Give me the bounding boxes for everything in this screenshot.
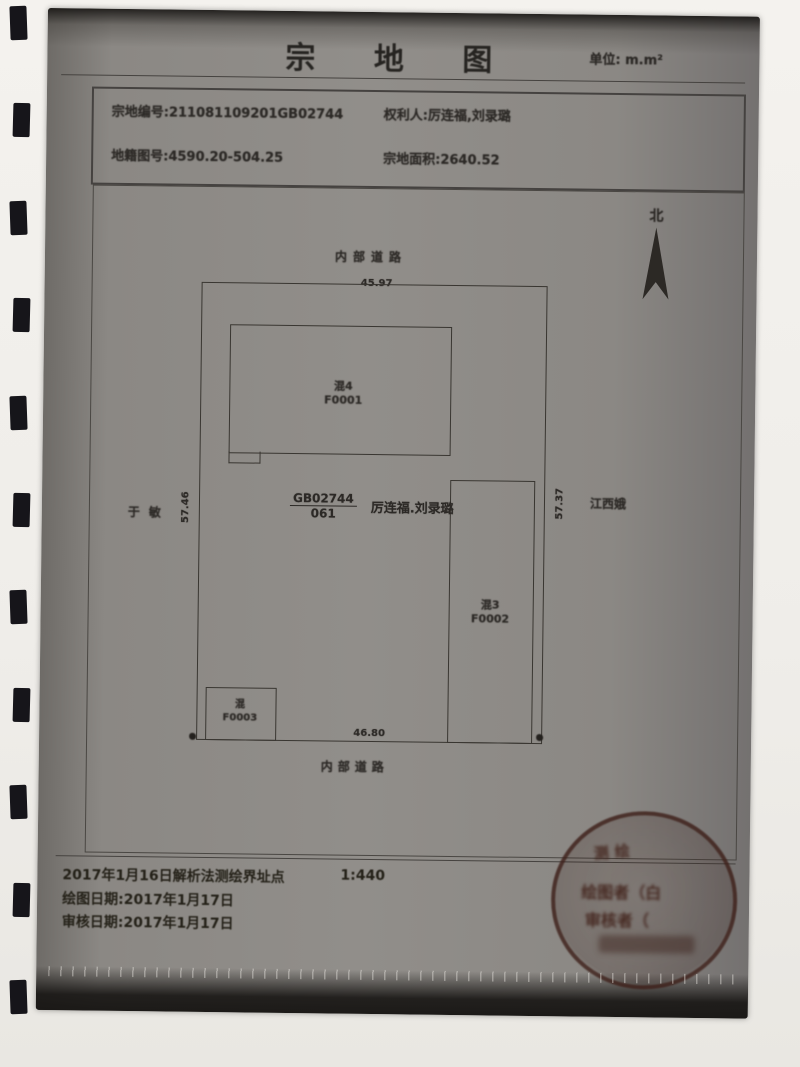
- neighbor-left: 于敏: [128, 503, 170, 521]
- stamp-smudge: [598, 935, 694, 954]
- binding-mark: [9, 785, 27, 820]
- binding-mark: [13, 298, 31, 332]
- binding-mark: [13, 103, 31, 137]
- review-date: 审核日期:2017年1月17日: [62, 911, 234, 933]
- binding-mark: [9, 6, 27, 41]
- binding-mark: [9, 200, 27, 235]
- dimension-bottom: 46.80: [339, 728, 399, 740]
- building-code: F0001: [293, 393, 393, 408]
- binding-mark: [13, 493, 31, 527]
- binding-mark: [13, 688, 31, 722]
- cadastral-sheet-number: 地籍图号:4590.20-504.25: [111, 145, 283, 166]
- parcel-designation: GB02744 061 厉连福.刘录璐: [290, 491, 454, 522]
- parcel-info-box: 宗地编号:211081109201GB02744 权利人:厉连福,刘录璐 地籍图…: [91, 87, 746, 193]
- binding-mark: [9, 590, 27, 625]
- drawing-date: 绘图日期:2017年1月17日: [62, 888, 234, 910]
- stamp-arc-text: 测绘: [593, 839, 637, 864]
- unit-label: 单位: m.m²: [589, 49, 663, 69]
- building-code: F0003: [205, 711, 274, 725]
- building-type: 混4: [293, 379, 393, 394]
- dimension-right: 57.37: [554, 488, 565, 520]
- north-label: 北: [649, 205, 663, 225]
- binding-mark: [9, 395, 27, 430]
- boundary-point-marker: [536, 734, 543, 741]
- binding-strip: [10, 6, 36, 1014]
- scanned-parcel-map-page: 宗 地 图 单位: m.m² 宗地编号:211081109201GB02744 …: [36, 8, 760, 1019]
- building-label-f0002: 混3 F0002: [448, 598, 531, 627]
- building-label-f0003: 混 F0003: [205, 698, 274, 725]
- road-label-bottom: 内部道路: [321, 757, 389, 775]
- parcel-code-fraction: GB02744 061: [290, 491, 357, 521]
- binding-mark: [9, 980, 27, 1015]
- building-label-f0001: 混4 F0001: [293, 379, 393, 408]
- rights-holder: 权利人:厉连福,刘录璐: [384, 104, 511, 125]
- building-type: 混: [205, 698, 274, 712]
- parcel-code: GB02744: [290, 491, 357, 507]
- road-label-top: 内部道路: [335, 248, 407, 266]
- parcel-number: 宗地编号:211081109201GB02744: [112, 101, 344, 123]
- parcel-area: 宗地面积:2640.52: [383, 148, 500, 168]
- survey-method-line: 2017年1月16日解析法测绘界址点: [62, 864, 284, 887]
- page-title: 宗 地 图: [285, 33, 516, 80]
- parcel-subcode: 061: [290, 506, 357, 521]
- parcel-holders: 厉连福.刘录璐: [371, 497, 454, 517]
- official-stamp: 测绘 绘图者（白 审核者（: [550, 810, 738, 990]
- dimension-left: 57.46: [180, 491, 191, 523]
- building-code: F0002: [448, 612, 531, 627]
- boundary-point-marker: [189, 733, 196, 740]
- stamp-reviewer-line: 审核者（: [585, 907, 649, 932]
- binding-mark: [13, 882, 31, 916]
- map-scale: 1:440: [340, 868, 385, 885]
- building-type: 混3: [449, 598, 532, 613]
- neighbor-right: 江西娥: [590, 495, 626, 512]
- building-f0001-notch: [228, 451, 260, 463]
- stamp-drafter-line: 绘图者（白: [581, 879, 661, 904]
